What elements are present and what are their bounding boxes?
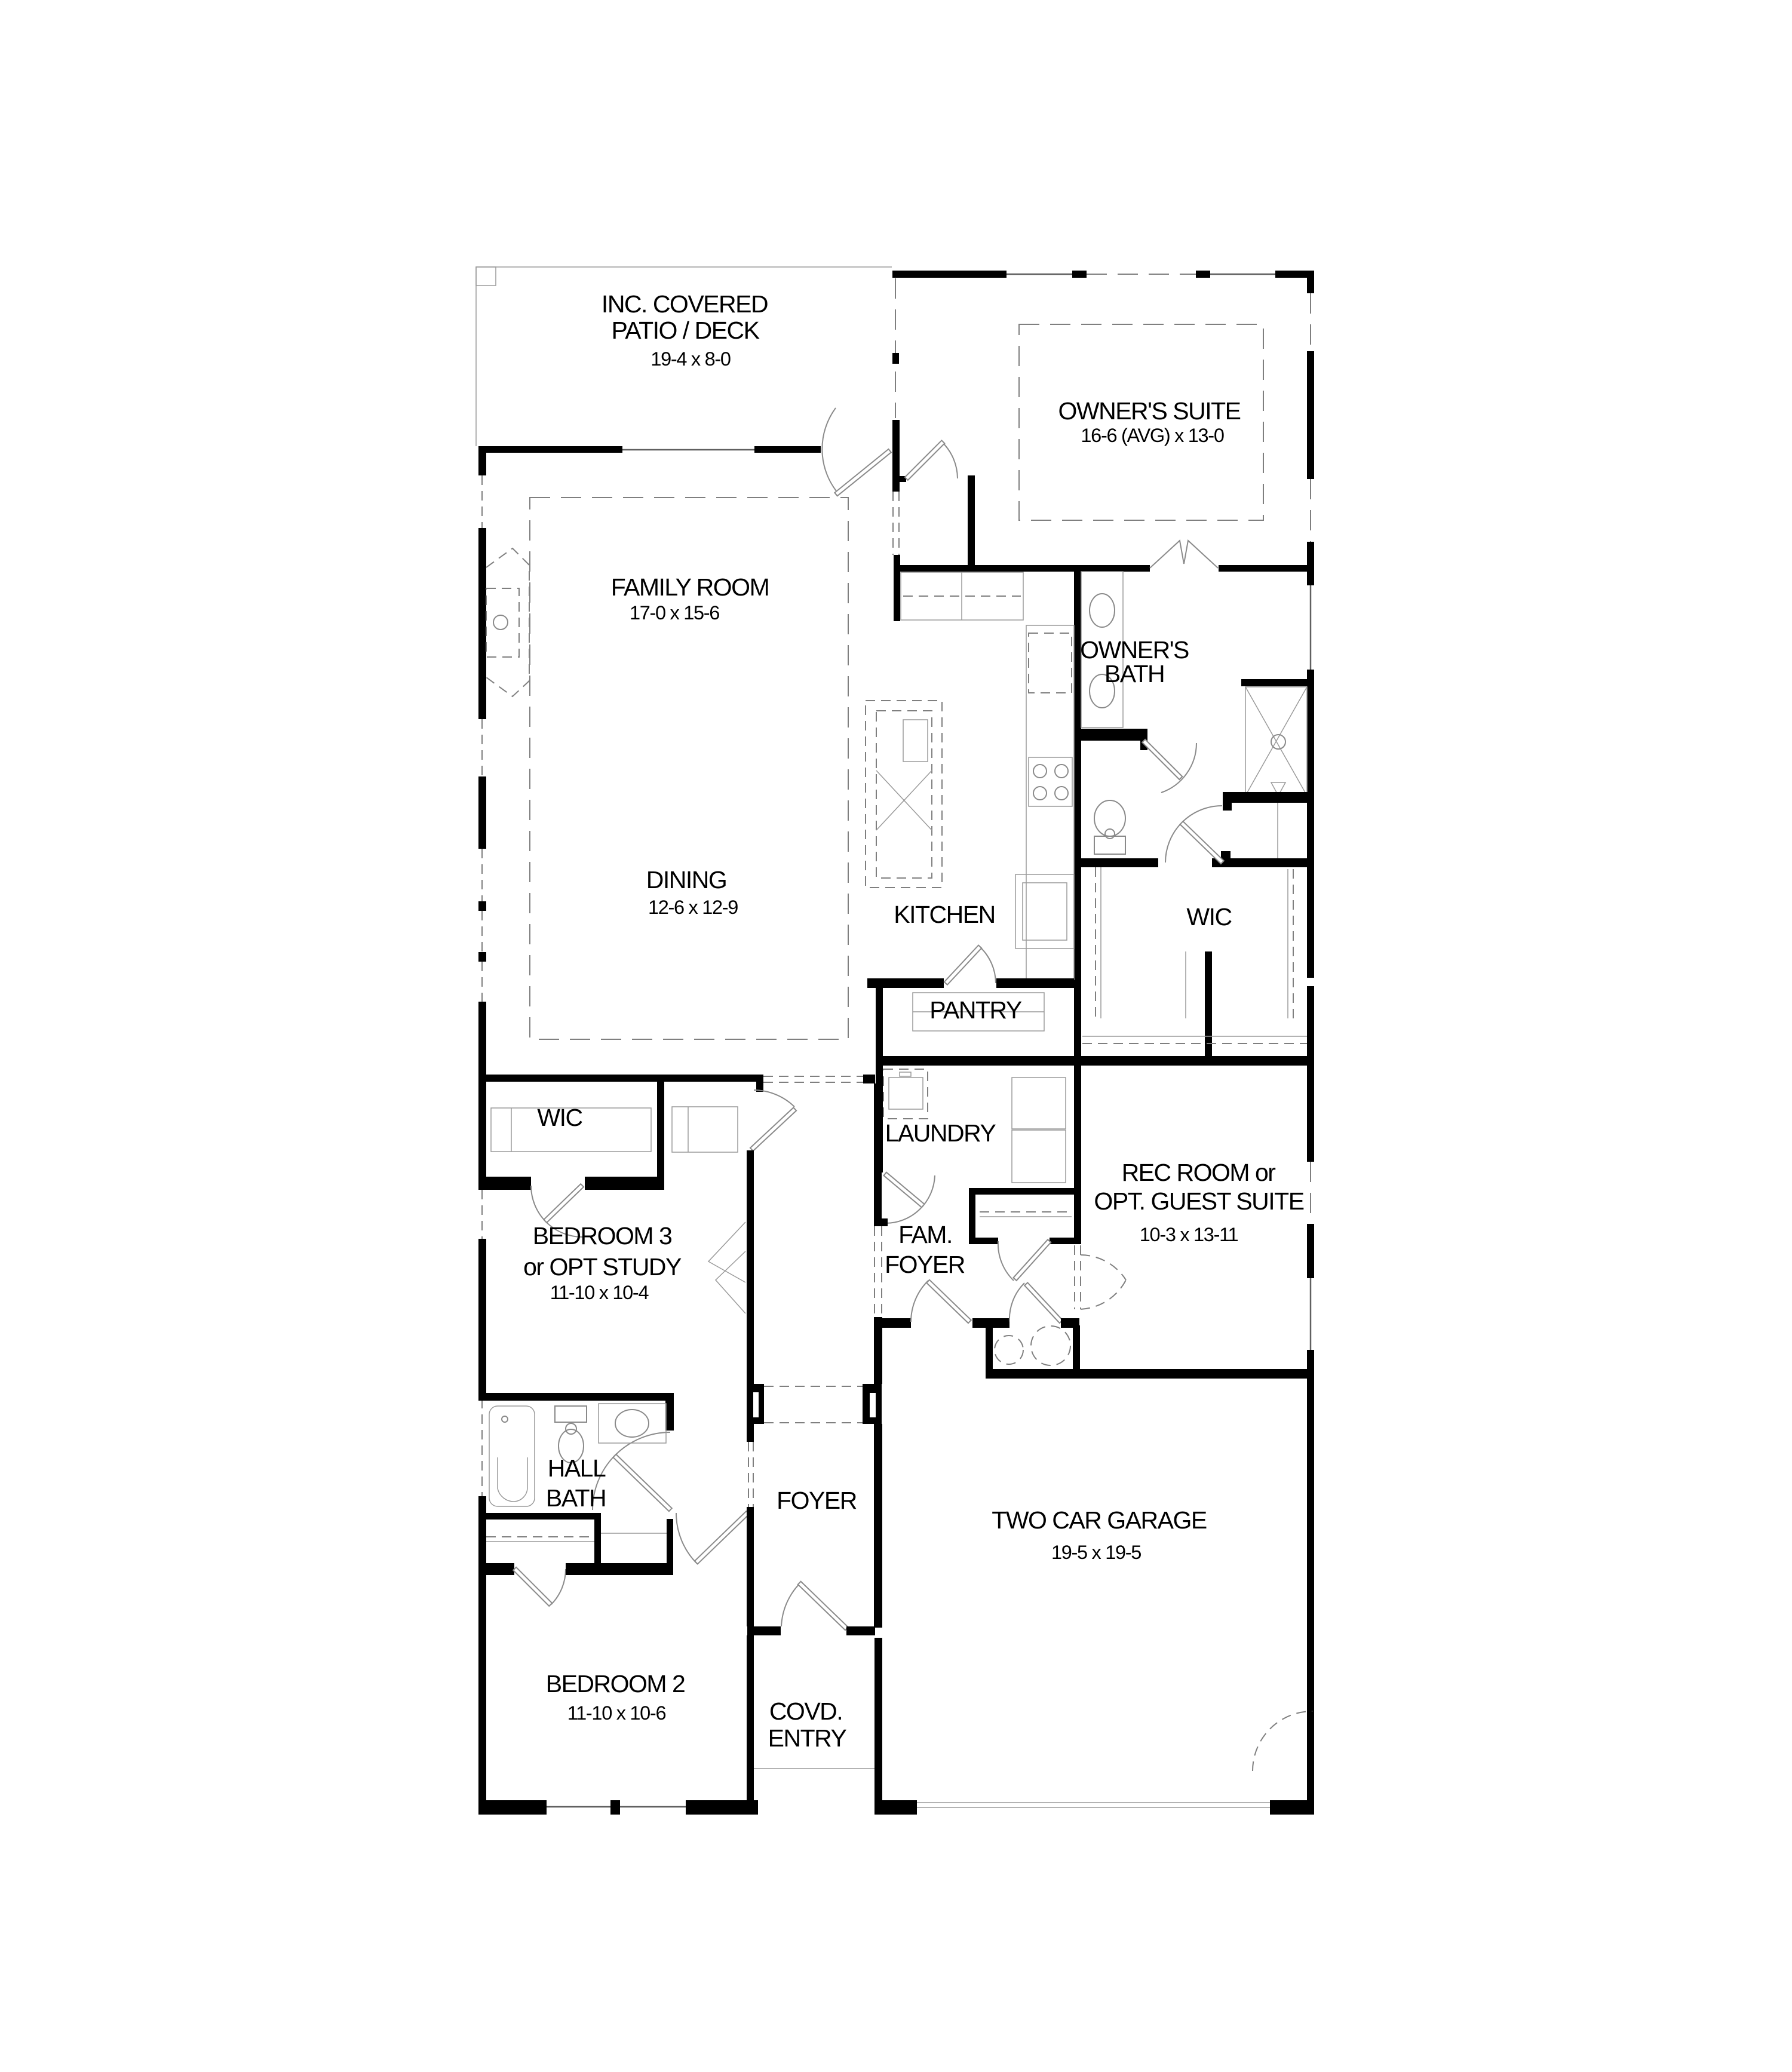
svg-text:FOYER: FOYER bbox=[777, 1487, 857, 1514]
svg-text:WIC: WIC bbox=[1186, 903, 1232, 931]
svg-text:10-3 x 13-11: 10-3 x 13-11 bbox=[1140, 1224, 1238, 1245]
svg-text:BEDROOM 2: BEDROOM 2 bbox=[546, 1670, 685, 1697]
svg-text:19-4 x 8-0: 19-4 x 8-0 bbox=[650, 348, 731, 370]
svg-text:REC ROOM or: REC ROOM or bbox=[1122, 1159, 1276, 1186]
svg-text:OWNER'S SUITE: OWNER'S SUITE bbox=[1058, 397, 1241, 425]
svg-text:BATH: BATH bbox=[546, 1484, 606, 1512]
svg-text:KITCHEN: KITCHEN bbox=[894, 901, 995, 928]
svg-text:HALL: HALL bbox=[548, 1454, 606, 1482]
svg-text:19-5 x 19-5: 19-5 x 19-5 bbox=[1051, 1542, 1141, 1563]
svg-text:FAM.: FAM. bbox=[898, 1221, 952, 1248]
svg-text:OPT. GUEST SUITE: OPT. GUEST SUITE bbox=[1094, 1187, 1303, 1215]
svg-text:INC. COVERED: INC. COVERED bbox=[602, 290, 768, 318]
svg-text:11-10 x 10-4: 11-10 x 10-4 bbox=[550, 1282, 649, 1303]
svg-text:PANTRY: PANTRY bbox=[929, 996, 1022, 1024]
svg-text:DINING: DINING bbox=[646, 866, 727, 894]
svg-text:WIC: WIC bbox=[537, 1104, 582, 1131]
svg-text:TWO CAR GARAGE: TWO CAR GARAGE bbox=[992, 1506, 1207, 1534]
svg-text:ENTRY: ENTRY bbox=[768, 1724, 847, 1752]
svg-text:BATH: BATH bbox=[1104, 660, 1164, 687]
svg-text:COVD.: COVD. bbox=[769, 1697, 842, 1725]
svg-text:or OPT STUDY: or OPT STUDY bbox=[523, 1253, 682, 1281]
svg-text:12-6 x 12-9: 12-6 x 12-9 bbox=[648, 897, 738, 918]
svg-text:FOYER: FOYER bbox=[885, 1251, 965, 1278]
svg-text:11-10 x 10-6: 11-10 x 10-6 bbox=[567, 1702, 666, 1724]
svg-text:BEDROOM 3: BEDROOM 3 bbox=[533, 1222, 672, 1250]
svg-text:16-6 (AVG) x 13-0: 16-6 (AVG) x 13-0 bbox=[1081, 425, 1223, 446]
svg-text:17-0 x 15-6: 17-0 x 15-6 bbox=[630, 602, 719, 624]
svg-text:PATIO / DECK: PATIO / DECK bbox=[611, 317, 759, 344]
svg-text:LAUNDRY: LAUNDRY bbox=[885, 1119, 996, 1147]
svg-text:FAMILY ROOM: FAMILY ROOM bbox=[611, 573, 769, 601]
